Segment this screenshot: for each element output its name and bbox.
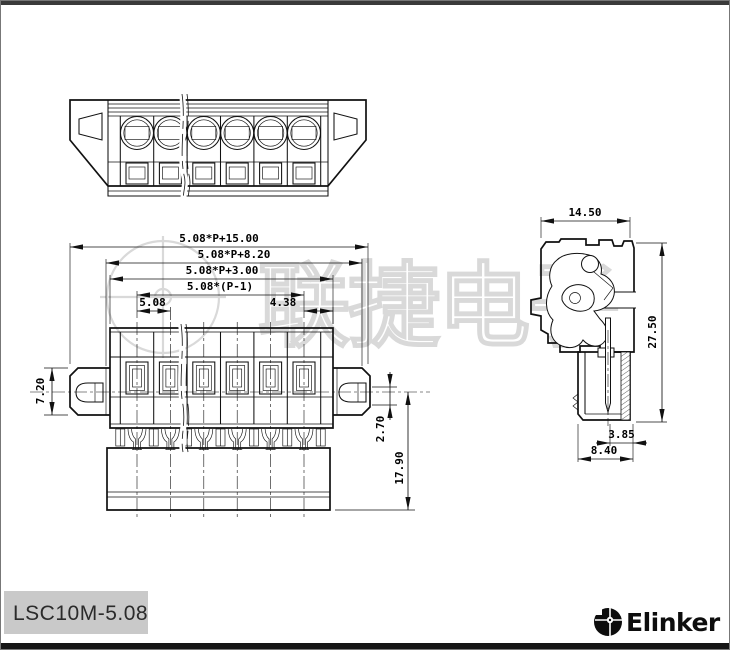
dim-body-width: 5.08*P+3.00 [186, 264, 259, 277]
dim-side-depth: 8.40 [591, 444, 618, 457]
drawing-sheet: 联 捷 电 子 [0, 0, 730, 650]
dim-end-offset: 4.38 [270, 296, 297, 309]
watermark-char: 电 [438, 253, 530, 360]
brand-logo-text: Elinker [626, 608, 721, 637]
dim-pitch: 5.08 [139, 296, 166, 309]
dim-total-width: 5.08*P+15.00 [179, 232, 258, 245]
pcb-strip [621, 352, 630, 420]
wire-dome [582, 256, 599, 273]
dim-pole-span: 5.08*(P-1) [187, 280, 253, 293]
dim-mounting-width: 5.08*P+8.20 [198, 248, 271, 261]
dim-ear-height: 7.20 [34, 378, 47, 405]
part-number-label: LSC10M-5.08 [13, 602, 148, 625]
dim-total-height: 17.90 [393, 451, 406, 484]
dim-pin-inset: 3.85 [608, 428, 635, 441]
title-block: LSC10M-5.08 [4, 591, 148, 634]
brand-logo: Elinker [592, 605, 721, 637]
dim-side-width: 14.50 [568, 206, 601, 219]
dim-slot-offset: 2.70 [374, 416, 387, 443]
spring-loop [562, 285, 594, 311]
dim-side-height: 27.50 [646, 315, 659, 348]
bottom-bar [0, 643, 730, 650]
